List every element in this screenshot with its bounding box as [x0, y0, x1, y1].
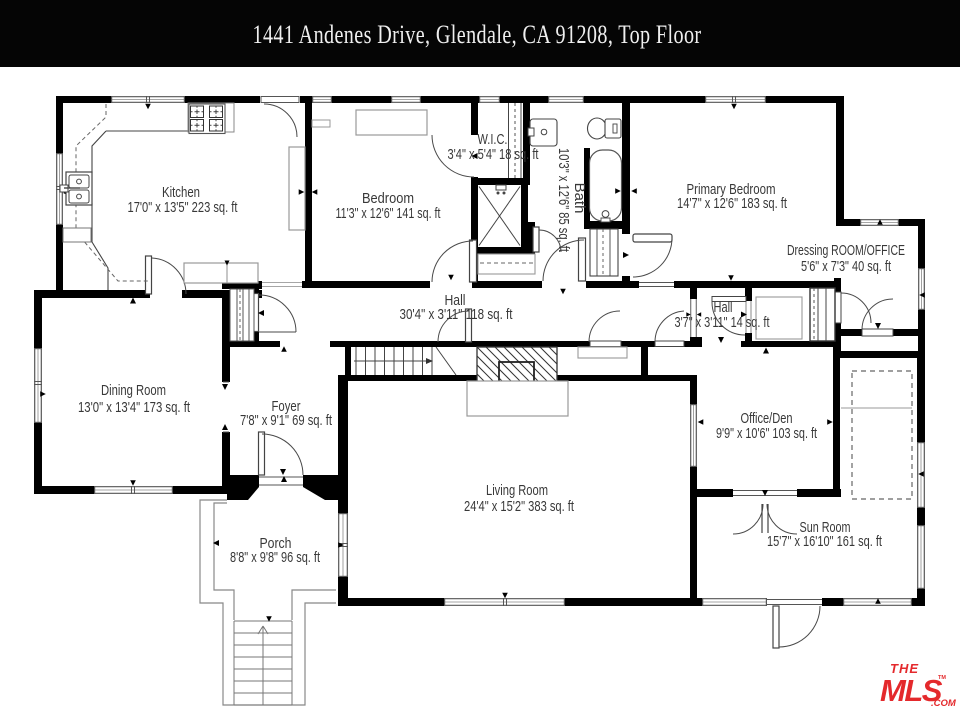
- svg-text:13'0" x 13'4" 173 sq. ft: 13'0" x 13'4" 173 sq. ft: [78, 399, 191, 416]
- svg-text:11'3" x 12'6" 141 sq. ft: 11'3" x 12'6" 141 sq. ft: [336, 205, 442, 222]
- svg-text:Dining Room: Dining Room: [101, 382, 166, 399]
- svg-text:3'7" x 3'11" 14 sq. ft: 3'7" x 3'11" 14 sq. ft: [675, 314, 771, 331]
- svg-text:15'7" x 16'10" 161 sq. ft: 15'7" x 16'10" 161 sq. ft: [767, 533, 883, 550]
- svg-text:1441 Andenes Drive, Glendale,: 1441 Andenes Drive, Glendale, CA 91208, …: [253, 20, 702, 49]
- svg-text:TM: TM: [938, 675, 946, 681]
- svg-text:17'0" x 13'5" 223 sq. ft: 17'0" x 13'5" 223 sq. ft: [128, 199, 239, 216]
- svg-text:9'9" x 10'6" 103 sq. ft: 9'9" x 10'6" 103 sq. ft: [716, 425, 818, 442]
- svg-text:14'7" x 12'6" 183 sq. ft: 14'7" x 12'6" 183 sq. ft: [677, 195, 788, 212]
- svg-text:3'4" x 5'4" 18 sq. ft: 3'4" x 5'4" 18 sq. ft: [448, 146, 540, 163]
- svg-text:24'4" x 15'2" 383 sq. ft: 24'4" x 15'2" 383 sq. ft: [464, 498, 575, 515]
- svg-text:7'8" x 9'1" 69 sq. ft: 7'8" x 9'1" 69 sq. ft: [240, 412, 333, 429]
- svg-text:.COM: .COM: [931, 698, 957, 709]
- svg-text:5'6" x 7'3" 40 sq. ft: 5'6" x 7'3" 40 sq. ft: [801, 258, 892, 275]
- svg-text:Dressing ROOM/OFFICE: Dressing ROOM/OFFICE: [787, 242, 905, 259]
- svg-text:Living Room: Living Room: [486, 482, 548, 499]
- svg-text:8'8" x 9'8" 96 sq. ft: 8'8" x 9'8" 96 sq. ft: [230, 549, 321, 566]
- svg-text:Bath: Bath: [571, 183, 588, 214]
- svg-text:10'3" x 12'6" 85 sq. ft: 10'3" x 12'6" 85 sq. ft: [555, 148, 572, 253]
- svg-text:30'4" x 3'11" 118 sq. ft: 30'4" x 3'11" 118 sq. ft: [400, 306, 514, 323]
